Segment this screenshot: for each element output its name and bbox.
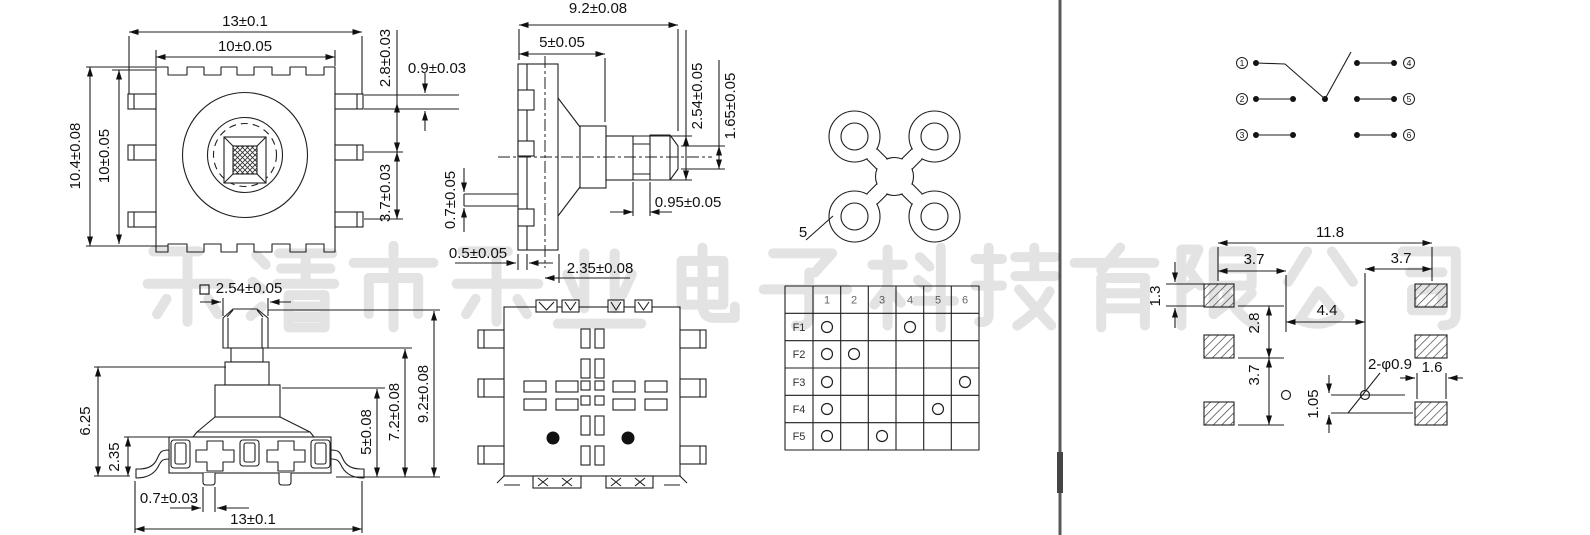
svg-text:2: 2 bbox=[851, 295, 857, 307]
svg-text:F3: F3 bbox=[793, 377, 806, 389]
svg-text:13±0.1: 13±0.1 bbox=[230, 511, 276, 528]
svg-text:5±0.05: 5±0.05 bbox=[539, 34, 585, 51]
svg-text:4: 4 bbox=[1407, 58, 1412, 68]
svg-text:0.7±0.05: 0.7±0.05 bbox=[442, 171, 459, 229]
svg-text:6: 6 bbox=[1407, 130, 1412, 140]
svg-text:1.05: 1.05 bbox=[1305, 389, 1322, 418]
svg-text:2: 2 bbox=[1240, 94, 1245, 104]
svg-text:5: 5 bbox=[1407, 94, 1412, 104]
svg-text:2.35: 2.35 bbox=[106, 442, 123, 471]
svg-text:9.2±0.08: 9.2±0.08 bbox=[415, 365, 432, 423]
svg-text:3: 3 bbox=[1240, 130, 1245, 140]
svg-text:0.7±0.03: 0.7±0.03 bbox=[140, 490, 198, 507]
svg-text:3.7±0.03: 3.7±0.03 bbox=[377, 164, 394, 222]
svg-text:2.54±0.05: 2.54±0.05 bbox=[689, 63, 706, 130]
svg-text:0.9±0.03: 0.9±0.03 bbox=[408, 60, 466, 77]
svg-text:11.8: 11.8 bbox=[1316, 224, 1344, 241]
svg-text:6.25: 6.25 bbox=[77, 406, 94, 435]
svg-text:2.8±0.03: 2.8±0.03 bbox=[377, 29, 394, 87]
svg-text:7.2±0.08: 7.2±0.08 bbox=[386, 383, 403, 441]
svg-text:1: 1 bbox=[824, 295, 830, 307]
svg-text:F4: F4 bbox=[793, 404, 806, 416]
svg-text:10.4±0.08: 10.4±0.08 bbox=[67, 123, 84, 190]
svg-text:0.95±0.05: 0.95±0.05 bbox=[655, 194, 722, 211]
svg-text:F2: F2 bbox=[793, 349, 806, 361]
svg-text:5±0.08: 5±0.08 bbox=[358, 409, 375, 455]
svg-text:2.35±0.08: 2.35±0.08 bbox=[567, 260, 634, 277]
svg-text:6: 6 bbox=[962, 295, 968, 307]
svg-text:9.2±0.08: 9.2±0.08 bbox=[569, 0, 627, 17]
svg-text:1: 1 bbox=[1240, 58, 1245, 68]
svg-text:3.7: 3.7 bbox=[1246, 365, 1263, 386]
svg-text:1.6: 1.6 bbox=[1422, 359, 1443, 376]
svg-text:10±0.05: 10±0.05 bbox=[218, 38, 272, 55]
svg-text:5: 5 bbox=[799, 224, 807, 241]
svg-text:2-φ0.9: 2-φ0.9 bbox=[1368, 356, 1412, 373]
svg-text:13±0.1: 13±0.1 bbox=[222, 13, 268, 30]
svg-text:F5: F5 bbox=[793, 431, 806, 443]
svg-text:10±0.05: 10±0.05 bbox=[96, 129, 113, 183]
svg-text:1.65±0.05: 1.65±0.05 bbox=[722, 73, 739, 140]
